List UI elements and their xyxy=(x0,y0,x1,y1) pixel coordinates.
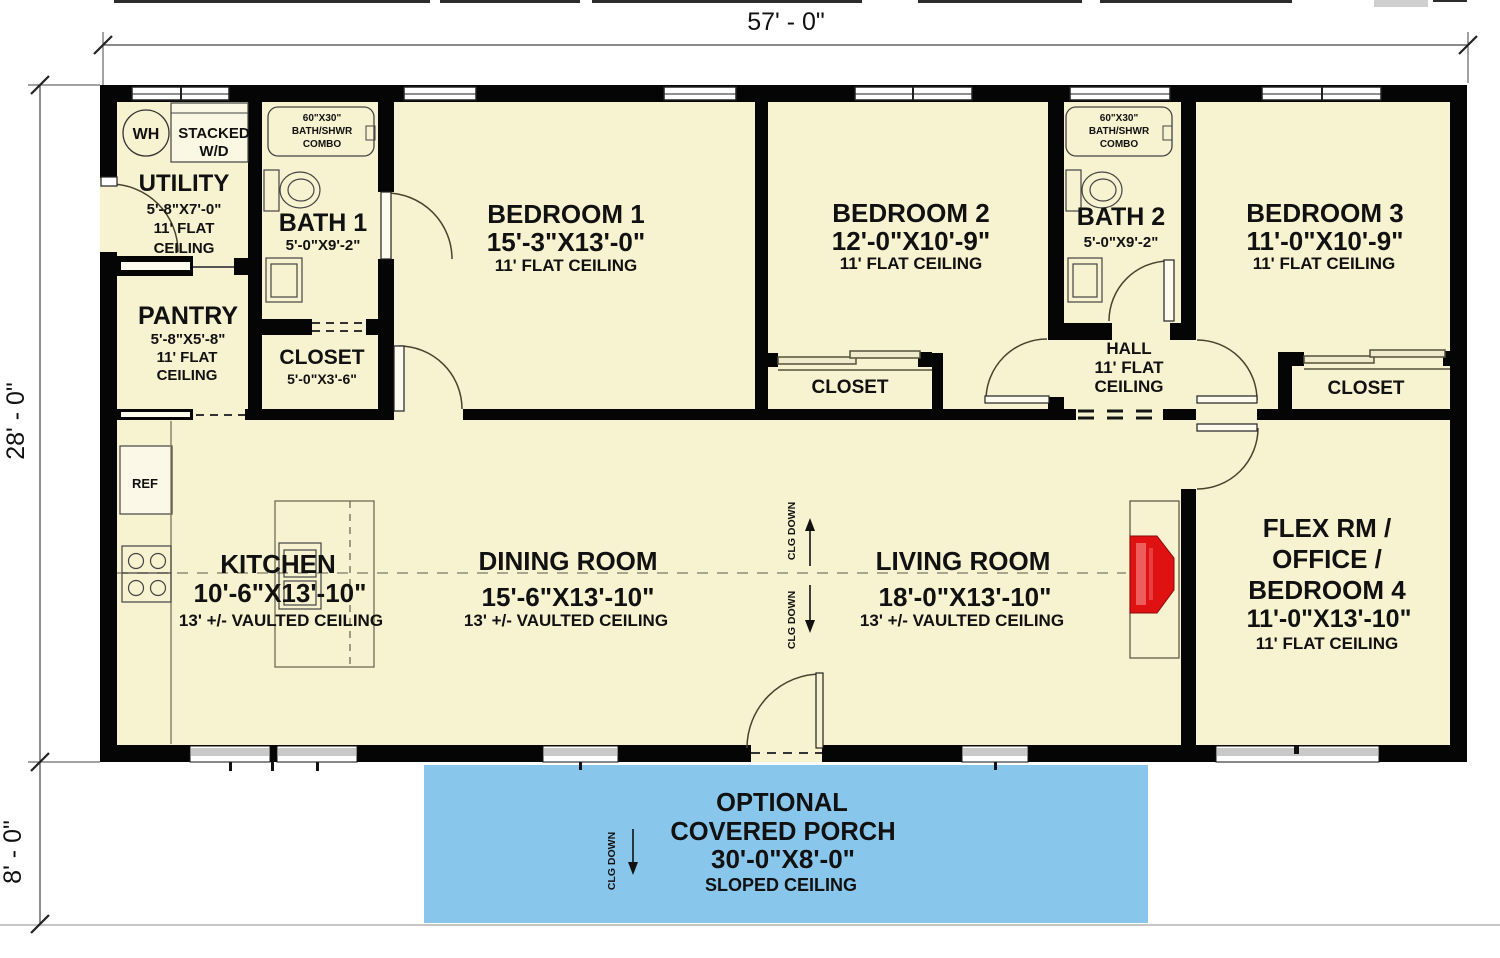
svg-text:30'-0"X8'-0": 30'-0"X8'-0" xyxy=(711,844,855,874)
svg-text:REF: REF xyxy=(132,476,158,491)
svg-text:13' +/- VAULTED CEILING: 13' +/- VAULTED CEILING xyxy=(860,611,1064,630)
svg-text:CLOSET: CLOSET xyxy=(1327,378,1404,399)
svg-text:UTILITY: UTILITY xyxy=(139,170,230,197)
svg-text:BATH/SHWR: BATH/SHWR xyxy=(1089,126,1150,137)
svg-text:11' FLAT CEILING: 11' FLAT CEILING xyxy=(1253,254,1396,273)
svg-text:STACKED: STACKED xyxy=(178,125,250,142)
svg-text:OFFICE /: OFFICE / xyxy=(1272,544,1382,574)
svg-text:W/D: W/D xyxy=(199,143,228,160)
svg-text:5'-0"X9'-2": 5'-0"X9'-2" xyxy=(1084,234,1159,251)
svg-text:CLG DOWN: CLG DOWN xyxy=(786,591,798,649)
svg-text:BEDROOM 2: BEDROOM 2 xyxy=(832,198,989,228)
svg-text:13' +/- VAULTED CEILING: 13' +/- VAULTED CEILING xyxy=(179,611,383,630)
svg-text:LIVING ROOM: LIVING ROOM xyxy=(876,546,1051,576)
svg-text:8' - 0": 8' - 0" xyxy=(0,820,27,884)
svg-text:60"X30": 60"X30" xyxy=(303,113,342,124)
svg-text:CLG DOWN: CLG DOWN xyxy=(786,502,798,560)
svg-text:WH: WH xyxy=(133,126,160,143)
svg-text:10'-6"X13'-10": 10'-6"X13'-10" xyxy=(194,578,367,608)
svg-text:BATH 2: BATH 2 xyxy=(1077,203,1165,231)
svg-text:11'-0"X13'-10": 11'-0"X13'-10" xyxy=(1247,605,1412,633)
svg-text:CEILING: CEILING xyxy=(157,367,218,384)
svg-text:BATH 1: BATH 1 xyxy=(279,209,368,237)
svg-text:15'-3"X13'-0": 15'-3"X13'-0" xyxy=(487,227,645,257)
svg-text:CLOSET: CLOSET xyxy=(811,377,888,398)
svg-text:COMBO: COMBO xyxy=(303,139,342,150)
svg-text:CLG DOWN: CLG DOWN xyxy=(606,832,618,890)
svg-text:DINING ROOM: DINING ROOM xyxy=(478,546,657,576)
svg-text:57' - 0": 57' - 0" xyxy=(747,8,825,36)
svg-text:SLOPED CEILING: SLOPED CEILING xyxy=(705,875,857,895)
svg-text:11' FLAT CEILING: 11' FLAT CEILING xyxy=(840,254,983,273)
svg-text:BEDROOM 4: BEDROOM 4 xyxy=(1248,575,1406,605)
svg-text:BEDROOM 3: BEDROOM 3 xyxy=(1246,198,1403,228)
svg-text:5'-8"X7'-0": 5'-8"X7'-0" xyxy=(147,201,222,218)
svg-text:CEILING: CEILING xyxy=(154,240,215,257)
svg-text:15'-6"X13'-10": 15'-6"X13'-10" xyxy=(482,582,655,612)
svg-text:KITCHEN: KITCHEN xyxy=(220,549,336,579)
svg-text:BATH/SHWR: BATH/SHWR xyxy=(292,126,353,137)
svg-text:11' FLAT CEILING: 11' FLAT CEILING xyxy=(1256,634,1399,653)
svg-text:11'-0"X10'-9": 11'-0"X10'-9" xyxy=(1246,226,1403,256)
svg-text:FLEX RM /: FLEX RM / xyxy=(1263,513,1392,543)
svg-text:13' +/- VAULTED CEILING: 13' +/- VAULTED CEILING xyxy=(464,611,668,630)
svg-text:11' FLAT: 11' FLAT xyxy=(1095,358,1165,377)
svg-text:11' FLAT: 11' FLAT xyxy=(157,349,218,366)
svg-text:BEDROOM 1: BEDROOM 1 xyxy=(487,199,644,229)
svg-text:11' FLAT CEILING: 11' FLAT CEILING xyxy=(495,256,638,275)
svg-text:CLOSET: CLOSET xyxy=(279,346,364,369)
svg-text:5'-0"X9'-2": 5'-0"X9'-2" xyxy=(286,237,361,254)
svg-text:HALL: HALL xyxy=(1106,339,1151,358)
svg-text:CEILING: CEILING xyxy=(1095,377,1164,396)
svg-text:COMBO: COMBO xyxy=(1100,139,1139,150)
svg-text:28' - 0": 28' - 0" xyxy=(2,382,30,460)
svg-text:OPTIONAL: OPTIONAL xyxy=(716,789,848,817)
svg-text:18'-0"X13'-10": 18'-0"X13'-10" xyxy=(879,582,1052,612)
svg-text:12'-0"X10'-9": 12'-0"X10'-9" xyxy=(832,226,990,256)
svg-text:5'-8"X5'-8": 5'-8"X5'-8" xyxy=(151,331,226,348)
svg-text:5'-0"X3'-6": 5'-0"X3'-6" xyxy=(287,371,357,387)
svg-text:PANTRY: PANTRY xyxy=(138,302,238,330)
svg-text:11' FLAT: 11' FLAT xyxy=(154,220,215,237)
svg-text:60"X30": 60"X30" xyxy=(1100,113,1139,124)
svg-text:COVERED PORCH: COVERED PORCH xyxy=(670,818,895,846)
